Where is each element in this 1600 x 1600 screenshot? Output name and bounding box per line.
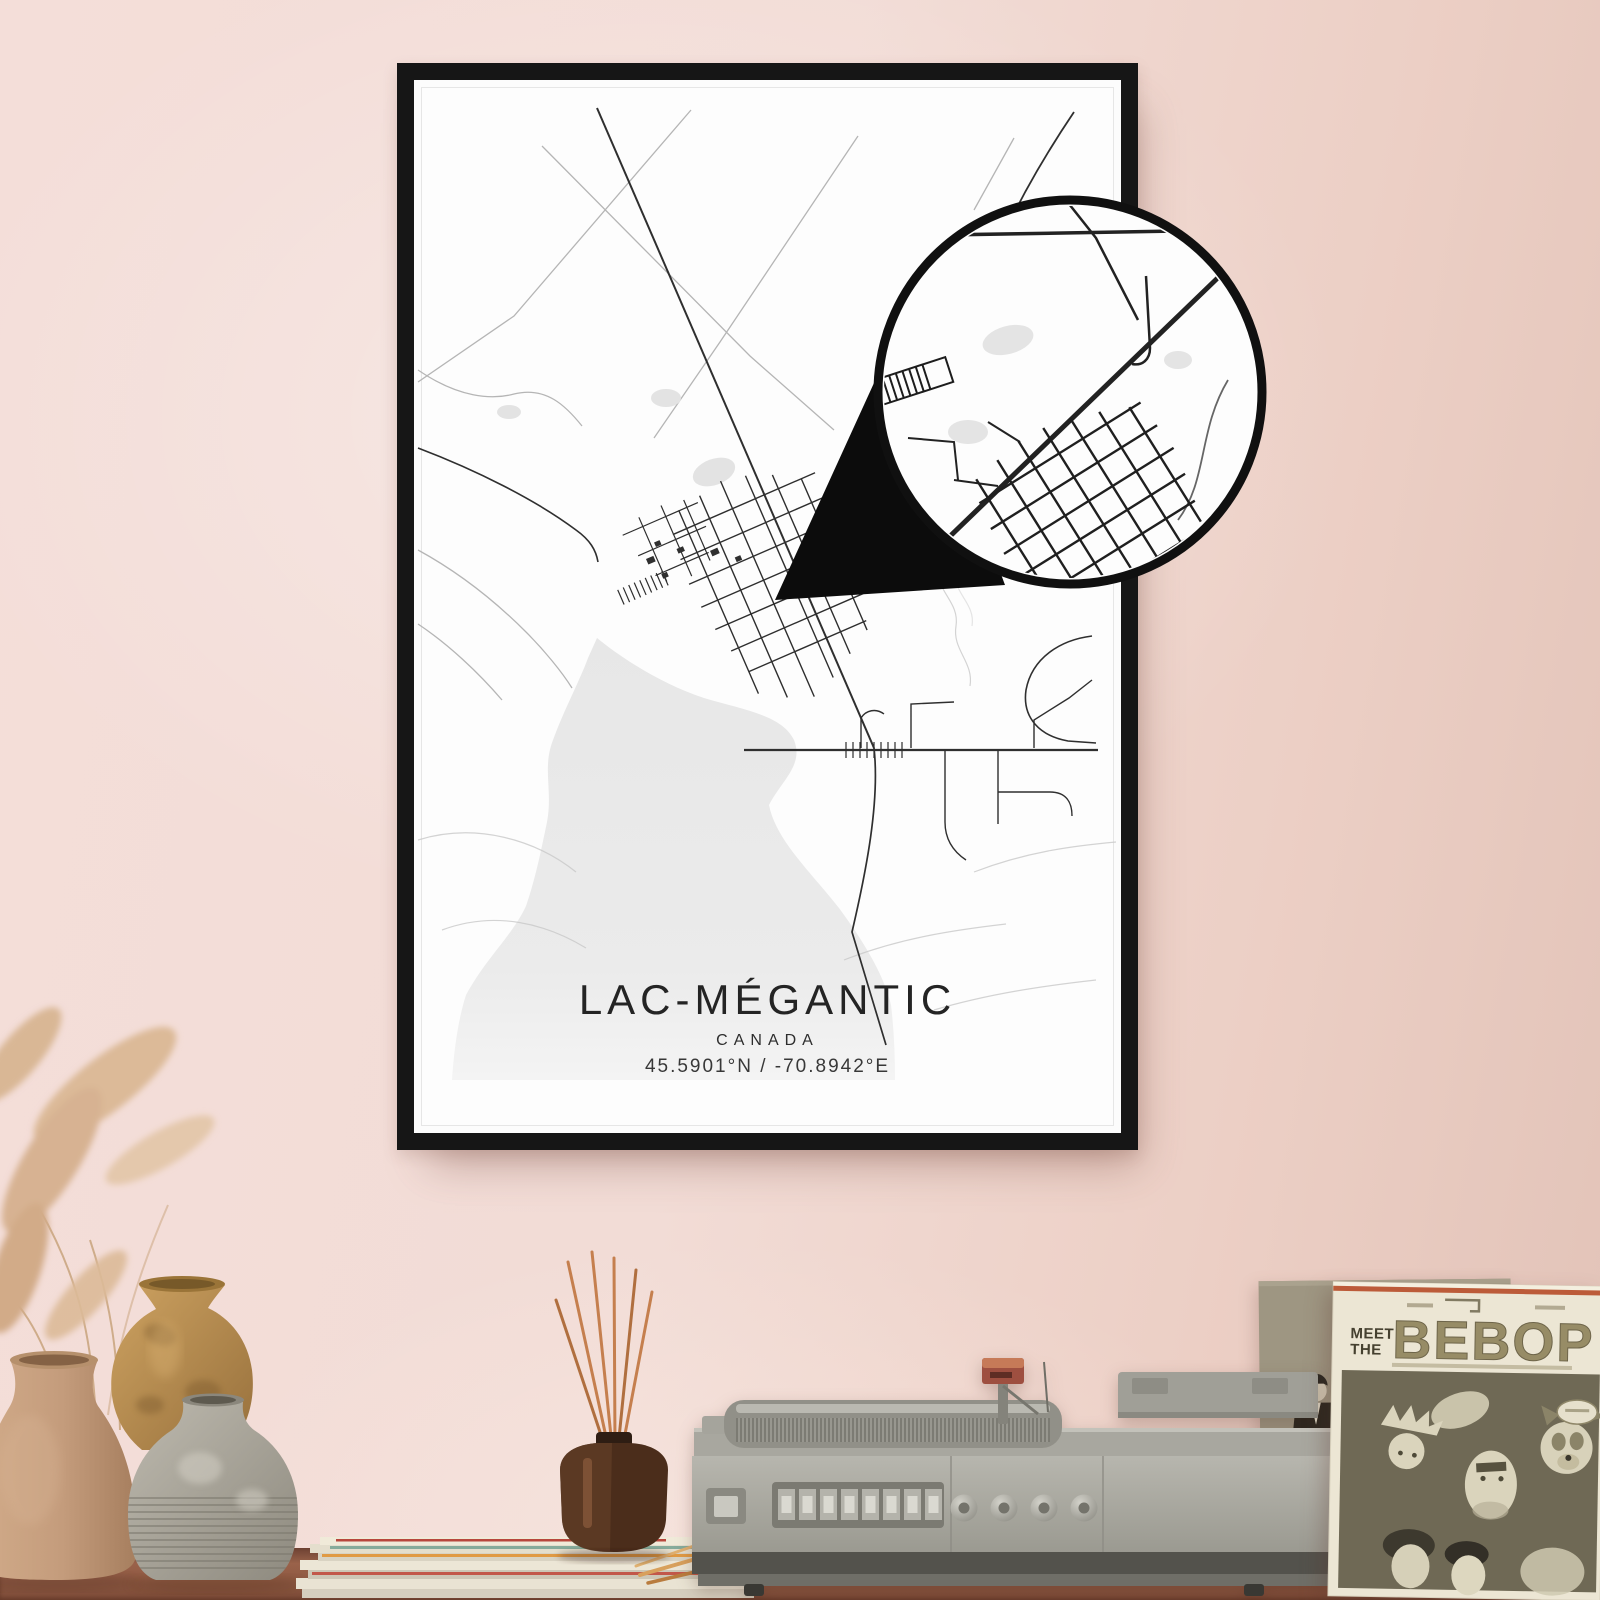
poster-country: CANADA [414, 1032, 1121, 1050]
record-player [688, 1328, 1340, 1600]
nw-street-cluster [618, 492, 724, 595]
sleeve-title-the: THE [1350, 1341, 1382, 1359]
record-label-logo [1557, 1400, 1597, 1425]
poster-title: LAC-MÉGANTIC [414, 976, 1121, 1024]
player-lid-section [1118, 1372, 1318, 1418]
magazine-stack [296, 1537, 754, 1598]
ponds [497, 389, 739, 492]
room-scene: MEET THE BEBOP [0, 0, 1600, 1600]
reed-diffuser [556, 1252, 670, 1563]
bebop-record-sleeve: MEET THE BEBOP [1300, 1262, 1600, 1600]
sleeve-title-meet: MEET [1350, 1325, 1394, 1343]
power-button [706, 1488, 746, 1524]
zoom-callout [758, 180, 1270, 628]
sleeve-photo-collage [1338, 1370, 1600, 1598]
preset-buttons [772, 1482, 944, 1528]
callout-circle [878, 200, 1262, 584]
poster-coordinates: 45.5901°N / -70.8942°E [414, 1056, 1121, 1078]
